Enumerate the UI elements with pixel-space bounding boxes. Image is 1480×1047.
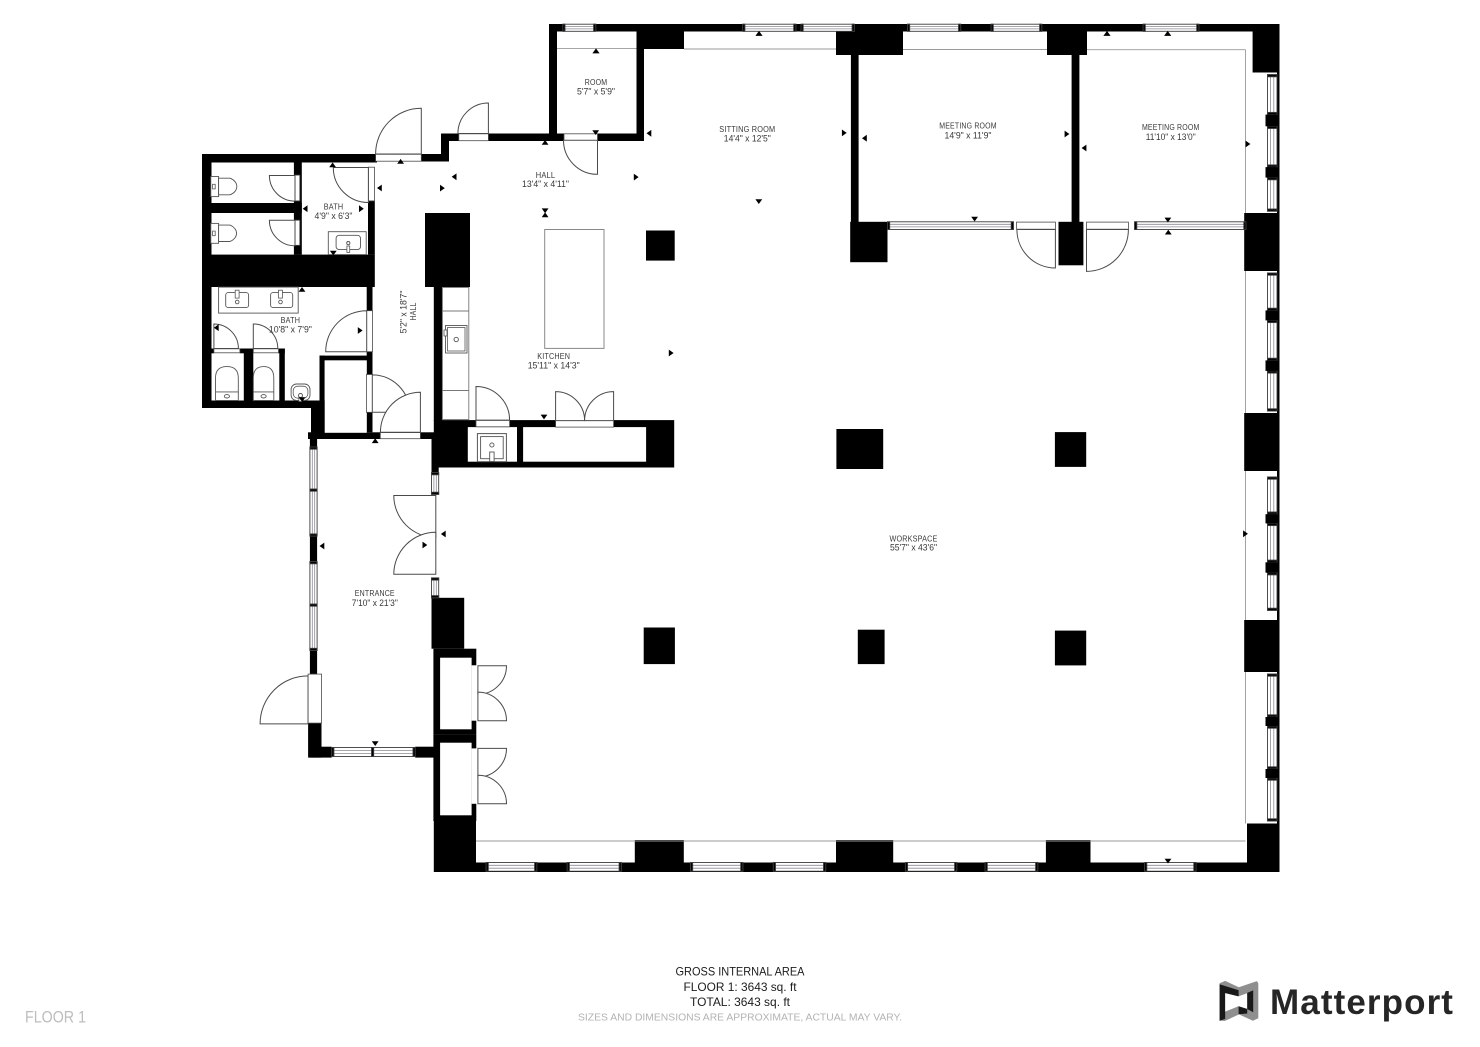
svg-text:FLOOR 1: 3643 sq. ft: FLOOR 1: 3643 sq. ft	[684, 980, 798, 994]
svg-text:55'7" x 43'6": 55'7" x 43'6"	[890, 542, 937, 552]
svg-text:MEETING ROOM: MEETING ROOM	[1142, 123, 1200, 132]
svg-text:Matterport: Matterport	[1270, 983, 1454, 1022]
svg-text:14'9" x 11'9": 14'9" x 11'9"	[945, 131, 992, 141]
svg-text:7'10" x 21'3": 7'10" x 21'3"	[352, 598, 398, 608]
svg-text:SIZES AND DIMENSIONS ARE APPRO: SIZES AND DIMENSIONS ARE APPROXIMATE, AC…	[578, 1012, 902, 1023]
svg-text:4'9" x 6'3": 4'9" x 6'3"	[315, 211, 353, 221]
svg-text:SITTING ROOM: SITTING ROOM	[719, 125, 775, 134]
svg-text:11'10" x 13'0": 11'10" x 13'0"	[1146, 132, 1196, 142]
svg-text:5'2" x 18'7": 5'2" x 18'7"	[399, 291, 409, 334]
svg-text:10'8" x 7'9": 10'8" x 7'9"	[269, 324, 312, 334]
svg-text:13'4" x 4'11": 13'4" x 4'11"	[522, 179, 569, 189]
svg-text:TOTAL: 3643 sq. ft: TOTAL: 3643 sq. ft	[690, 995, 791, 1009]
svg-text:MEETING ROOM: MEETING ROOM	[939, 122, 997, 131]
svg-text:GROSS INTERNAL AREA: GROSS INTERNAL AREA	[676, 965, 805, 979]
svg-text:14'4" x 12'5": 14'4" x 12'5"	[724, 134, 771, 144]
svg-text:FLOOR 1: FLOOR 1	[25, 1007, 86, 1026]
svg-text:15'11" x 14'3": 15'11" x 14'3"	[528, 361, 580, 371]
svg-text:HALL: HALL	[409, 302, 418, 320]
svg-text:5'7" x 5'9": 5'7" x 5'9"	[577, 87, 615, 97]
